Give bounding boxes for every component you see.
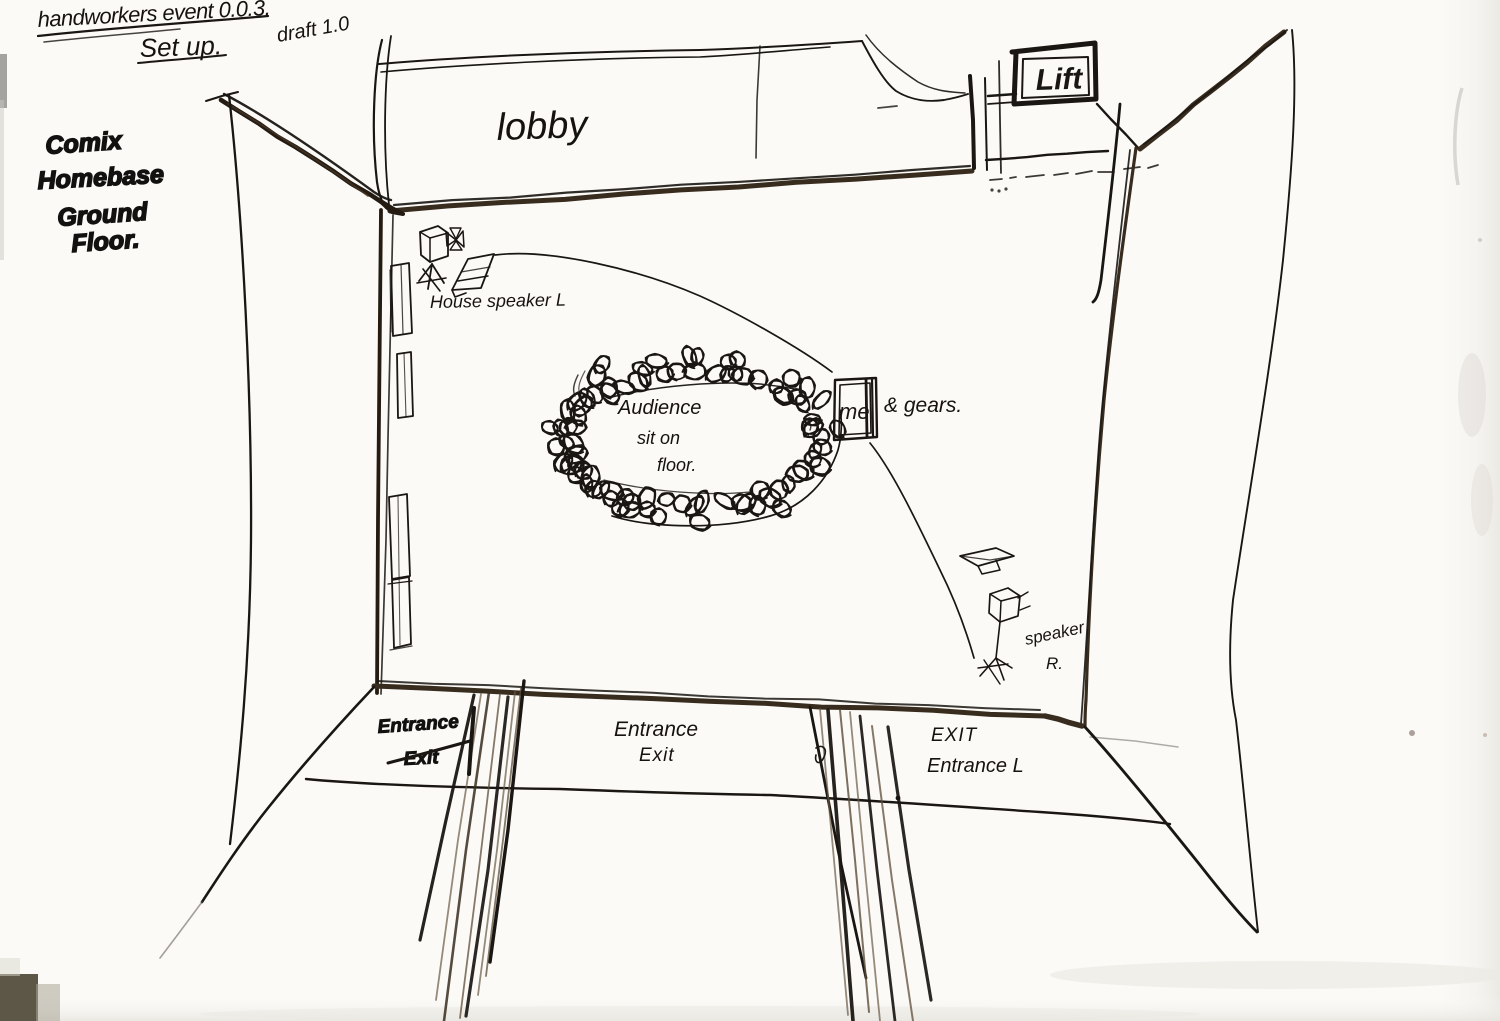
svg-text:Audience: Audience [617, 397, 701, 419]
svg-text:EXIT: EXIT [931, 725, 978, 746]
svg-text:Set up.: Set up. [139, 30, 222, 63]
svg-text:me: me [839, 399, 870, 424]
svg-text:& gears.: & gears. [884, 394, 962, 417]
svg-text:Floor.: Floor. [70, 225, 140, 258]
svg-text:sit on: sit on [637, 428, 680, 448]
svg-text:Entrance: Entrance [614, 718, 698, 741]
svg-text:lobby: lobby [496, 104, 590, 149]
svg-text:R.: R. [1046, 654, 1063, 673]
svg-text:floor.: floor. [657, 455, 696, 475]
svg-text:Lift: Lift [1035, 62, 1085, 97]
svg-text:Comix: Comix [44, 127, 123, 160]
svg-text:Exit: Exit [639, 745, 675, 766]
svg-text:House speaker L: House speaker L [430, 290, 566, 312]
svg-text:Entrance L: Entrance L [927, 755, 1024, 777]
